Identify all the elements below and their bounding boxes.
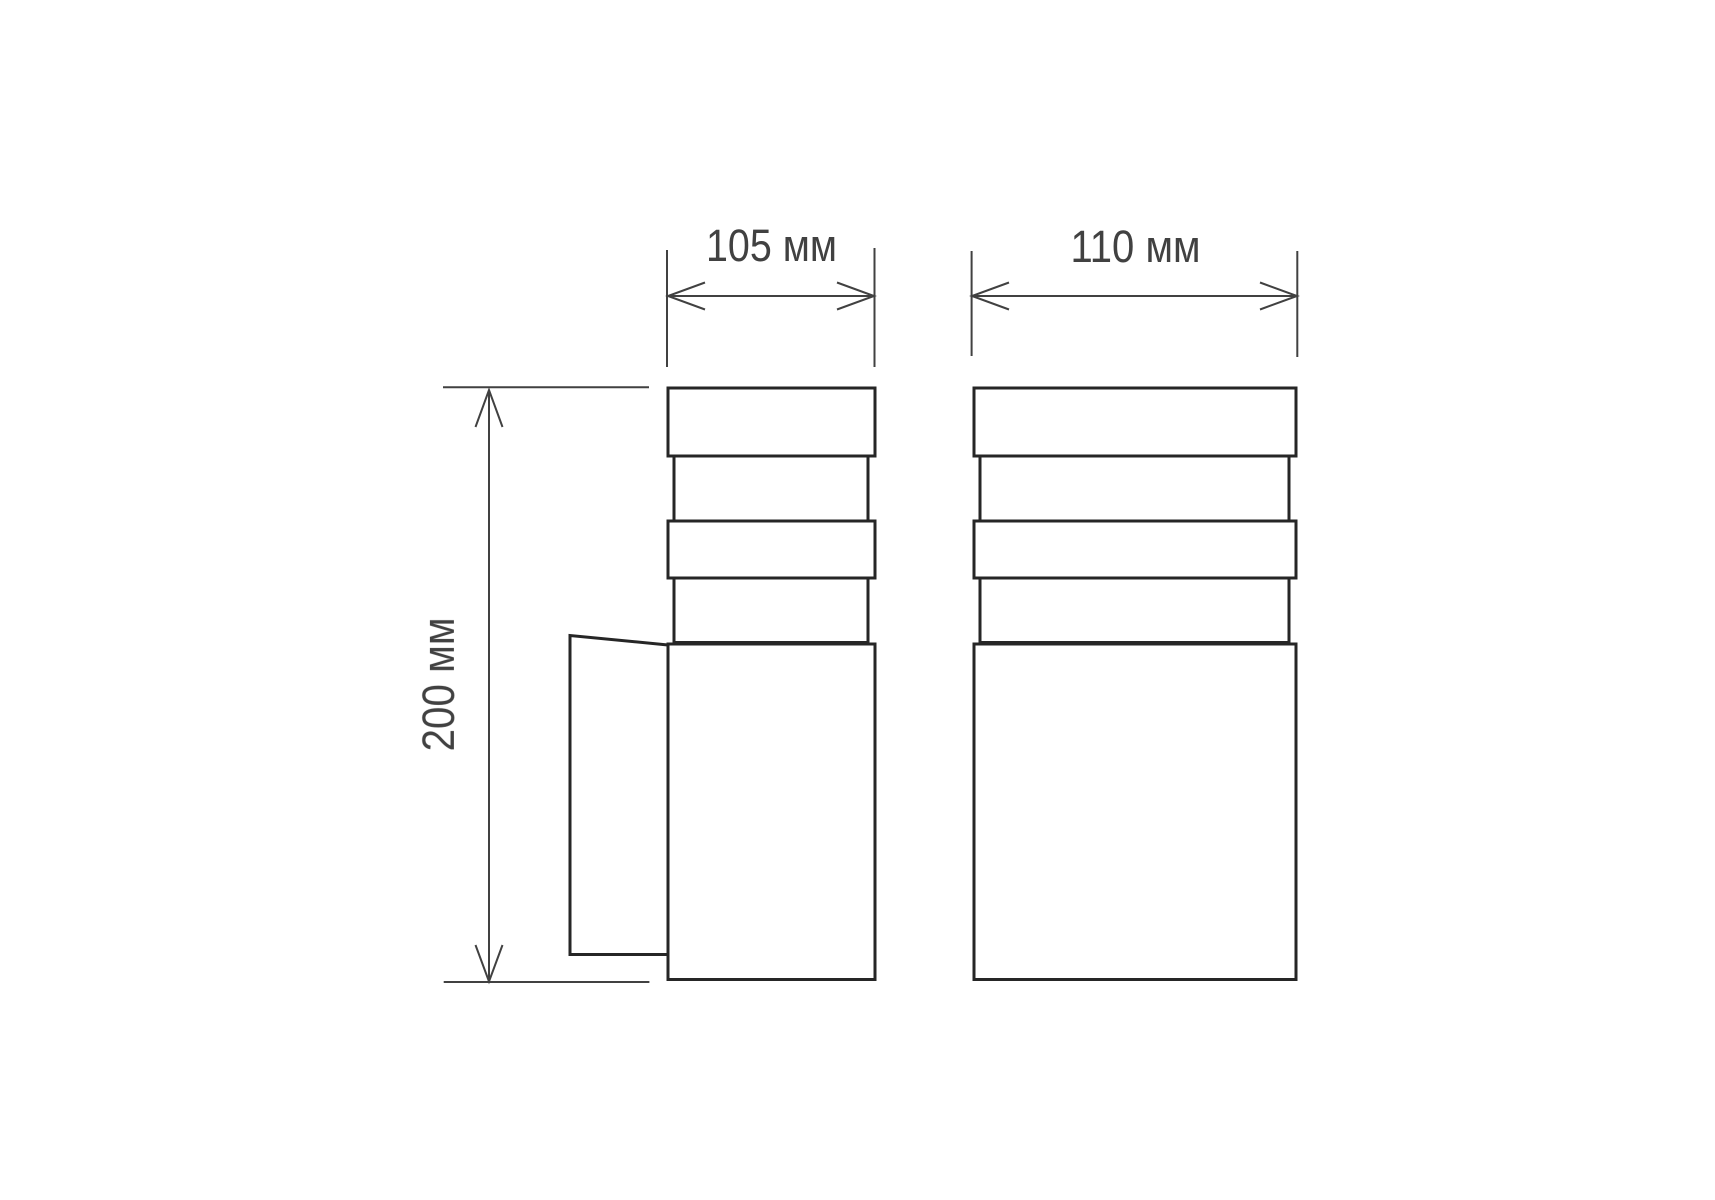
svg-text:110 мм: 110 мм — [1071, 221, 1201, 272]
svg-text:105 мм: 105 мм — [706, 220, 837, 271]
svg-text:200 мм: 200 мм — [413, 617, 464, 751]
